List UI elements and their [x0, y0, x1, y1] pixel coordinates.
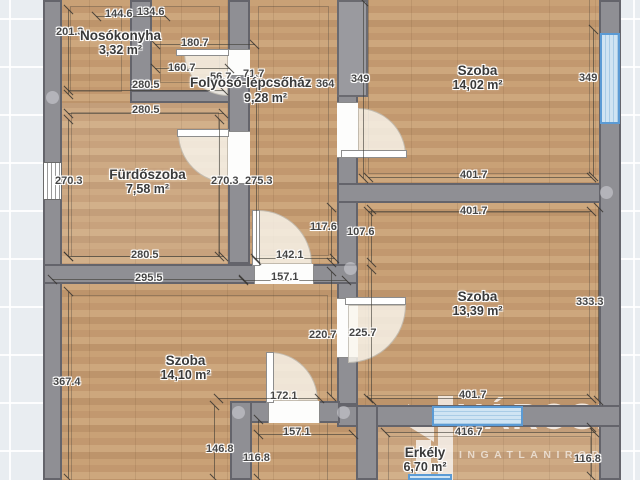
- room-name: Szoba: [123, 353, 248, 368]
- dimension-label: 180.7: [181, 37, 209, 49]
- dimension-line: [219, 120, 220, 256]
- dimension-label: 280.5: [131, 249, 159, 261]
- dimension-label: 275.3: [245, 175, 273, 187]
- dimension-label: 116.8: [243, 452, 270, 464]
- room-label: Fürdőszoba 7,58 m²: [85, 167, 210, 196]
- dimension-line: [256, 88, 257, 260]
- dimension-label: 157.1: [271, 271, 299, 283]
- door-leaf: [341, 150, 407, 158]
- window-icon: [600, 33, 620, 124]
- dimension-label: 416.7: [455, 426, 483, 438]
- room-name: Fürdőszoba: [85, 167, 210, 182]
- room-label: Nosókonyha 3,32 m²: [58, 28, 183, 57]
- dimension-label: 146.8: [206, 443, 234, 455]
- room-area: 13,39 m²: [415, 304, 540, 318]
- dimension-label: 172.1: [270, 390, 298, 402]
- room-name: Nosókonyha: [58, 28, 183, 43]
- door-leaf: [177, 129, 229, 137]
- dimension-label: 364: [316, 78, 334, 90]
- dimension-label: 349: [351, 73, 369, 85]
- dimension-label: 367.4: [53, 376, 81, 388]
- dimension-line: [331, 208, 332, 262]
- dimension-label: 157.1: [283, 426, 311, 438]
- dimension-label: 117.6: [310, 221, 337, 233]
- wall-between-right-rooms: [337, 183, 621, 203]
- wall-node: [337, 406, 350, 419]
- dimension-label: 142.1: [276, 249, 304, 261]
- wall-node: [600, 186, 613, 199]
- dimension-label: 160.7: [168, 62, 196, 74]
- room-name: Szoba: [415, 289, 540, 304]
- room-label: Szoba 14,10 m²: [123, 353, 248, 382]
- door-leaf: [345, 297, 406, 305]
- dimension-label: 401.7: [459, 389, 487, 401]
- wall-outer-left: [43, 0, 62, 480]
- room-area: 6,70 m²: [375, 460, 475, 474]
- wall-node: [232, 406, 245, 419]
- dimension-line: [214, 406, 215, 478]
- room-name: Erkély: [375, 445, 475, 460]
- room-label: Szoba 14,02 m²: [415, 63, 540, 92]
- dimension-line: [258, 420, 259, 478]
- dimension-label: 295.5: [135, 272, 163, 284]
- dimension-label: 134.6: [137, 6, 165, 18]
- dimension-label: 401.7: [460, 205, 488, 217]
- room-name: Folyosó-lépcsőház: [190, 75, 312, 90]
- dimension-line: [68, 120, 69, 256]
- dimension-line: [218, 398, 320, 399]
- door-leaf: [176, 49, 229, 56]
- dimension-line: [385, 432, 595, 433]
- dimension-line: [363, 2, 364, 178]
- room-label: Erkély 6,70 m²: [375, 445, 475, 474]
- wall-node: [46, 91, 59, 104]
- window-icon: [432, 406, 523, 426]
- dimension-label: 349: [579, 72, 597, 84]
- door-opening-hall: [268, 401, 320, 423]
- room-area: 14,02 m²: [415, 78, 540, 92]
- dimension-line: [591, 428, 592, 476]
- dimension-label: 270.3: [211, 175, 239, 187]
- dimension-label: 107.6: [347, 226, 375, 238]
- dimension-label: 401.7: [460, 169, 488, 181]
- dimension-label: 225.7: [349, 327, 377, 339]
- dimension-label: 144.6: [105, 8, 133, 20]
- room-name: Szoba: [415, 63, 540, 78]
- dimension-label: 220.7: [309, 329, 337, 341]
- room-area: 14,10 m²: [123, 368, 248, 382]
- dimension-label: 280.5: [132, 79, 160, 91]
- dimension-label: 333.3: [576, 296, 604, 308]
- dimension-label: 116.8: [574, 453, 601, 465]
- dimension-label: 280.5: [132, 104, 160, 116]
- room-area: 7,58 m²: [85, 182, 210, 196]
- floor-plan-canvas: 144.6 134.6 201.3 180.7 160.7 56.7 71.7 …: [0, 0, 640, 480]
- room-area: 3,32 m²: [58, 43, 183, 57]
- window-icon: [408, 474, 452, 480]
- wall-node: [344, 262, 357, 275]
- dimension-line: [593, 30, 594, 176]
- room-label: Szoba 13,39 m²: [415, 289, 540, 318]
- room-area: 9,28 m²: [244, 91, 287, 105]
- dimension-label: 270.3: [55, 175, 83, 187]
